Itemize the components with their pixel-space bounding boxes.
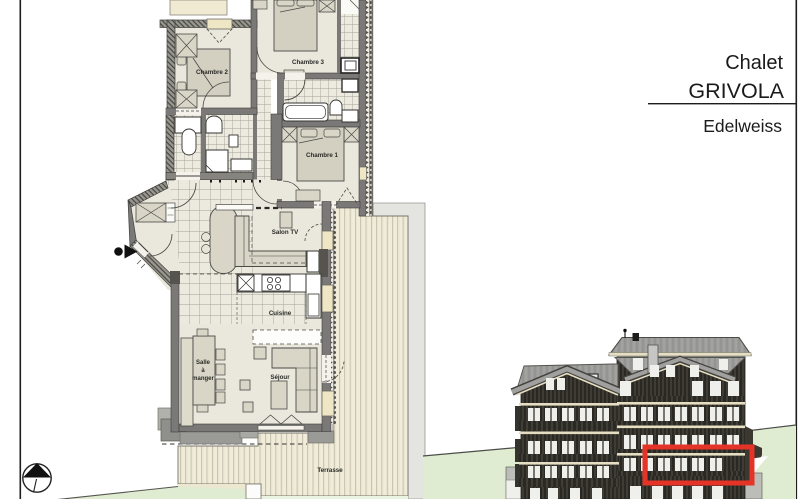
svg-text:Chambre 1: Chambre 1	[306, 152, 339, 159]
svg-text:Séjour: Séjour	[270, 374, 290, 381]
svg-text:Chalet: Chalet	[725, 52, 783, 74]
svg-text:Salle: Salle	[196, 360, 211, 366]
svg-text:GRIVOLA: GRIVOLA	[688, 79, 784, 103]
svg-text:Edelweiss: Edelweiss	[703, 116, 782, 136]
svg-text:Salon TV: Salon TV	[272, 229, 299, 236]
svg-text:Terrasse: Terrasse	[317, 467, 343, 474]
svg-text:manger: manger	[192, 376, 214, 382]
svg-text:Cuisine: Cuisine	[269, 310, 292, 317]
svg-text:Chambre 3: Chambre 3	[292, 59, 325, 66]
svg-text:Chambre 2: Chambre 2	[196, 69, 229, 76]
